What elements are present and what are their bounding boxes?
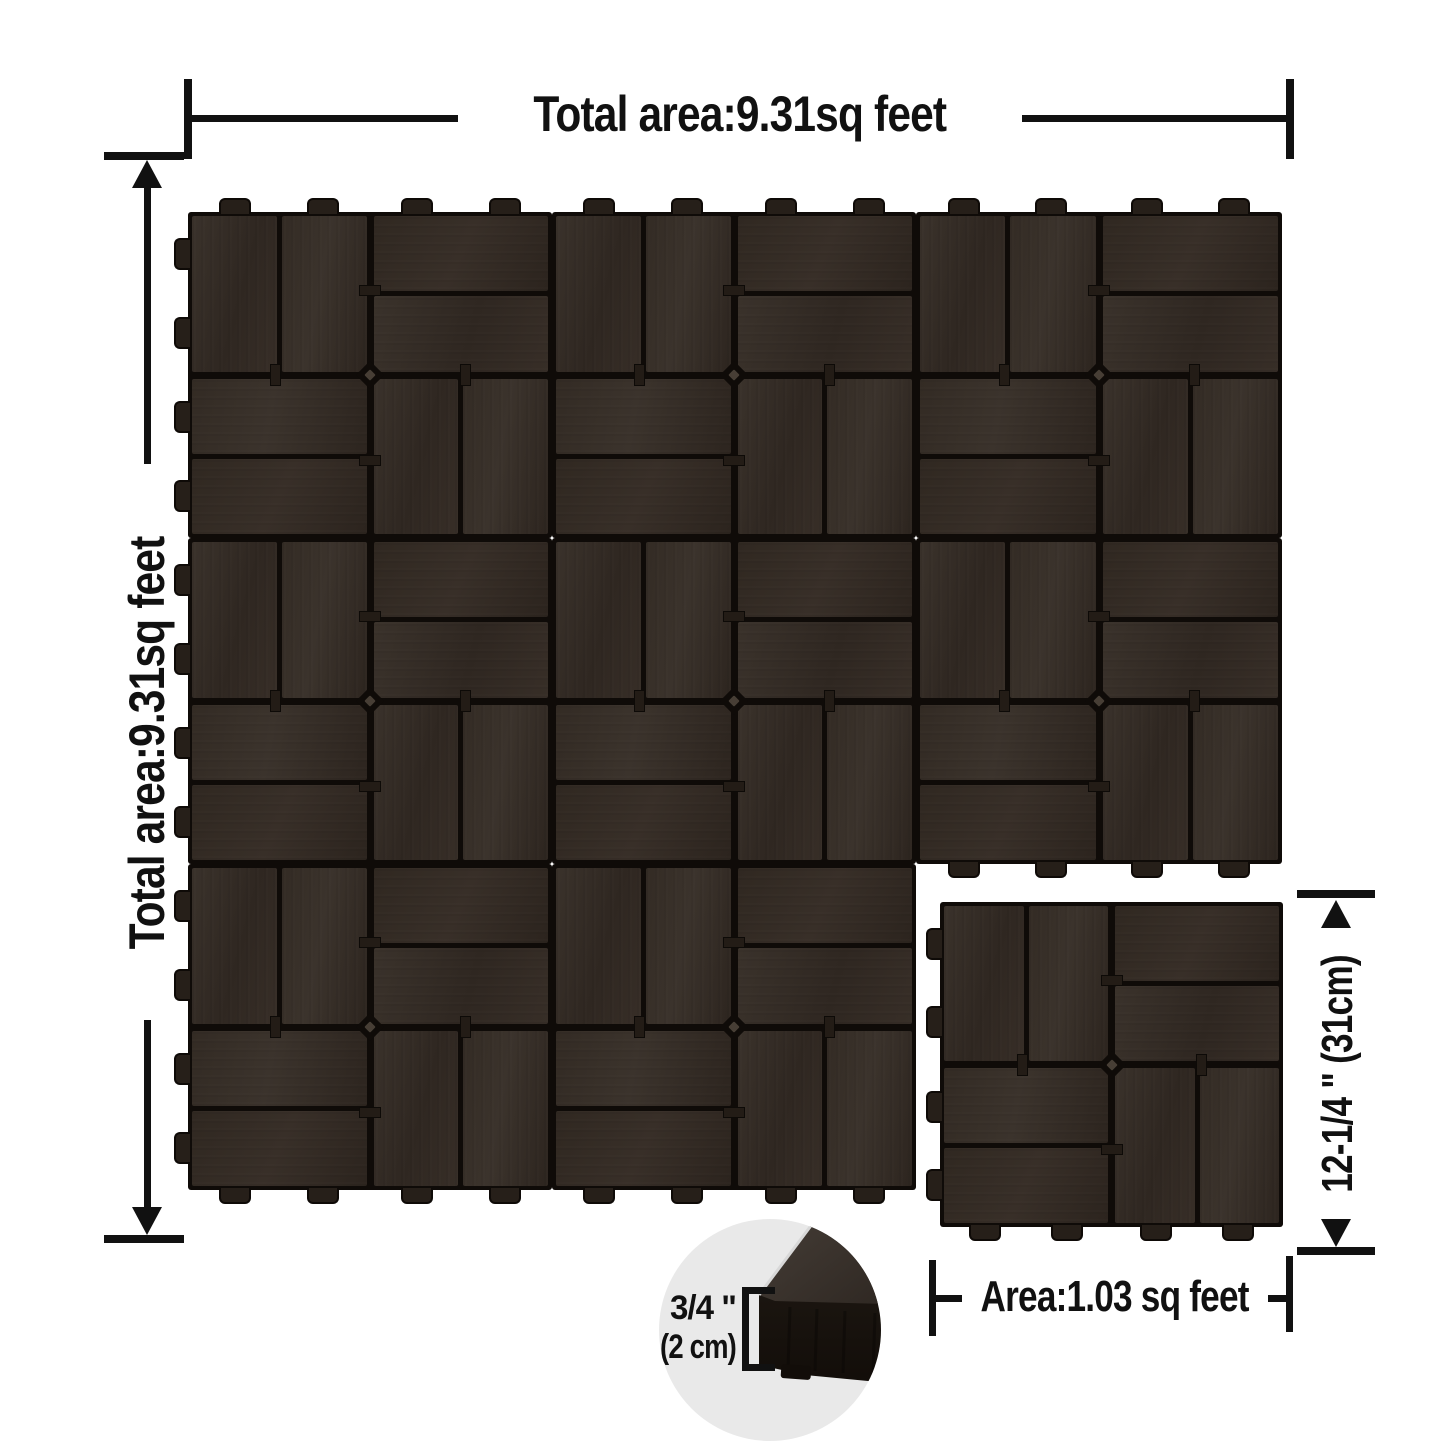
slat-connector bbox=[1196, 1054, 1207, 1076]
tile-slat bbox=[920, 785, 1096, 860]
tile-quadrant bbox=[920, 379, 1096, 535]
slat-connector bbox=[1088, 285, 1110, 296]
thickness-inset: 3/4 " (2 cm) bbox=[655, 1215, 885, 1445]
tile-slat bbox=[738, 379, 823, 535]
interlock-tab bbox=[583, 1188, 615, 1204]
tile-area-label: Area:1.03 sq feet bbox=[981, 1272, 1249, 1322]
interlock-tab bbox=[174, 806, 190, 838]
tile-slat bbox=[282, 216, 367, 372]
tile-slat bbox=[192, 216, 277, 372]
interlock-tab bbox=[926, 1091, 942, 1123]
tile-slat bbox=[556, 785, 731, 860]
tile-quadrant bbox=[374, 216, 549, 372]
tile-slat bbox=[374, 705, 459, 861]
tile-slat bbox=[1193, 705, 1278, 861]
tile-slat bbox=[556, 1111, 731, 1186]
slat-connector bbox=[359, 1107, 381, 1118]
tile-slat bbox=[192, 379, 367, 454]
tile-slat bbox=[282, 868, 367, 1024]
interlock-tab bbox=[926, 928, 942, 960]
tile-slat bbox=[1115, 986, 1279, 1061]
tile-quadrant bbox=[374, 868, 549, 1024]
interlock-tab bbox=[174, 317, 190, 349]
slat-connector bbox=[723, 611, 745, 622]
tile-quadrant bbox=[374, 705, 549, 861]
tile-quadrant bbox=[738, 705, 913, 861]
tile-quadrant bbox=[556, 216, 731, 372]
interlock-tab bbox=[948, 862, 980, 878]
tile-slat bbox=[192, 868, 277, 1024]
tile-quadrant bbox=[374, 1031, 549, 1187]
tile-slat bbox=[738, 705, 823, 861]
tile-size-bottom-tick bbox=[1297, 1247, 1375, 1255]
tile-slat bbox=[192, 542, 277, 698]
tile-quadrant bbox=[738, 542, 913, 698]
interlock-tab bbox=[174, 969, 190, 1001]
slat-connector bbox=[359, 781, 381, 792]
interlock-tab bbox=[174, 480, 190, 512]
tile-quadrant bbox=[556, 1031, 731, 1187]
deck-tile bbox=[916, 538, 1282, 864]
interlock-tab bbox=[174, 564, 190, 596]
deck-tile bbox=[552, 864, 916, 1190]
tile-slat bbox=[1103, 542, 1279, 617]
tile-slat bbox=[1115, 906, 1279, 981]
tile-slat bbox=[1103, 296, 1279, 371]
interlock-tab bbox=[401, 1188, 433, 1204]
slat-connector bbox=[723, 937, 745, 948]
tile-slat bbox=[920, 705, 1096, 780]
tile-size-top-tick bbox=[1297, 890, 1375, 898]
interlock-tab bbox=[853, 198, 885, 214]
slat-connector bbox=[460, 364, 471, 386]
interlock-tab bbox=[765, 1188, 797, 1204]
interlock-tab bbox=[489, 198, 521, 214]
interlock-tab bbox=[765, 198, 797, 214]
tile-quadrant bbox=[556, 542, 731, 698]
slat-connector bbox=[359, 285, 381, 296]
tile-slat bbox=[374, 1031, 459, 1187]
tile-slat bbox=[1103, 622, 1279, 697]
tile-slat bbox=[556, 379, 731, 454]
slat-connector bbox=[359, 611, 381, 622]
interlock-tab bbox=[926, 1169, 942, 1201]
slat-connector bbox=[270, 690, 281, 712]
tile-slat bbox=[920, 216, 1005, 372]
slat-connector bbox=[824, 690, 835, 712]
interlock-tab bbox=[174, 643, 190, 675]
tile-slat bbox=[556, 459, 731, 534]
total-area-left-label: Total area:9.31sq feet bbox=[118, 537, 176, 950]
deck-tile bbox=[188, 864, 552, 1190]
deck-tile bbox=[940, 902, 1283, 1227]
tile-slat bbox=[827, 379, 912, 535]
slat-connector bbox=[359, 455, 381, 466]
tile-quadrant bbox=[192, 379, 367, 535]
tile-quadrant bbox=[556, 705, 731, 861]
tile-quadrant bbox=[920, 216, 1096, 372]
interlock-tab bbox=[219, 198, 251, 214]
tile-slat bbox=[463, 1031, 548, 1187]
tile-slat bbox=[192, 1111, 367, 1186]
tile-slat bbox=[646, 868, 731, 1024]
tile-slat bbox=[1103, 216, 1279, 291]
total-area-top-label: Total area:9.31sq feet bbox=[534, 85, 947, 143]
slat-connector bbox=[723, 781, 745, 792]
total-area-left-dimension: Total area:9.31sq feet bbox=[119, 503, 175, 982]
interlock-tab bbox=[1222, 1225, 1254, 1241]
tile-slat bbox=[192, 1031, 367, 1106]
interlock-tab bbox=[1218, 198, 1250, 214]
tile-slat bbox=[556, 216, 641, 372]
tile-slat bbox=[374, 622, 549, 697]
interlock-tab bbox=[969, 1225, 1001, 1241]
tile-slat bbox=[827, 1031, 912, 1187]
deck-tile bbox=[916, 212, 1282, 538]
tile-quadrant bbox=[192, 705, 367, 861]
deck-tile bbox=[552, 538, 916, 864]
tile-slat bbox=[1103, 379, 1188, 535]
slat-connector bbox=[460, 1016, 471, 1038]
tile-slat bbox=[556, 868, 641, 1024]
deck-tile-dimension-diagram: Total area:9.31sq feet Total area:9.31sq… bbox=[0, 0, 1445, 1445]
deck-tile bbox=[552, 212, 916, 538]
tile-slat bbox=[738, 542, 913, 617]
deck-tile bbox=[188, 212, 552, 538]
slat-connector bbox=[1088, 781, 1110, 792]
tile-area-right-tick bbox=[1286, 1256, 1293, 1332]
thickness-inches-label: 3/4 " bbox=[670, 1289, 736, 1327]
tile-quadrant bbox=[920, 542, 1096, 698]
tile-slat bbox=[944, 1148, 1108, 1223]
interlock-tab bbox=[1131, 198, 1163, 214]
tile-slat bbox=[738, 622, 913, 697]
tile-slat bbox=[944, 906, 1024, 1061]
total-area-top-dimension: Total area:9.31sq feet bbox=[458, 86, 1022, 142]
slat-connector bbox=[634, 690, 645, 712]
slat-connector bbox=[1088, 611, 1110, 622]
tile-slat bbox=[192, 705, 367, 780]
interlock-tab bbox=[948, 198, 980, 214]
tile-quadrant bbox=[1103, 379, 1279, 535]
tile-slat bbox=[374, 379, 459, 535]
tile-slat bbox=[920, 542, 1005, 698]
slat-connector bbox=[1189, 364, 1200, 386]
tile-slat bbox=[738, 296, 913, 371]
tile-quadrant bbox=[944, 1068, 1108, 1223]
tile-quadrant bbox=[556, 379, 731, 535]
left-dim-line-top bbox=[144, 186, 151, 464]
interlock-tab bbox=[1051, 1225, 1083, 1241]
tile-slat bbox=[282, 542, 367, 698]
tile-slat bbox=[463, 379, 548, 535]
left-dim-top-tick bbox=[104, 152, 184, 160]
tile-slat bbox=[374, 296, 549, 371]
tile-slat bbox=[556, 705, 731, 780]
deck-tile bbox=[188, 538, 552, 864]
slat-connector bbox=[634, 1016, 645, 1038]
interlock-tab bbox=[174, 401, 190, 433]
interlock-tab bbox=[401, 198, 433, 214]
top-dim-right-tick bbox=[1286, 79, 1294, 159]
tile-quadrant bbox=[1103, 705, 1279, 861]
tile-slat bbox=[920, 459, 1096, 534]
tile-quadrant bbox=[738, 1031, 913, 1187]
tile-slat bbox=[738, 948, 913, 1023]
tile-slat bbox=[463, 705, 548, 861]
interlock-tab bbox=[1131, 862, 1163, 878]
interlock-tab bbox=[174, 727, 190, 759]
tile-slat bbox=[920, 379, 1096, 454]
tile-quadrant bbox=[192, 1031, 367, 1187]
tile-slat bbox=[738, 216, 913, 291]
tile-quadrant bbox=[738, 216, 913, 372]
tile-slat bbox=[192, 785, 367, 860]
slat-connector bbox=[723, 455, 745, 466]
interlock-tab bbox=[1035, 198, 1067, 214]
tile-quadrant bbox=[920, 705, 1096, 861]
tile-slat bbox=[374, 542, 549, 617]
tile-quadrant bbox=[738, 379, 913, 535]
slat-connector bbox=[1189, 690, 1200, 712]
left-dim-up-arrow-icon bbox=[132, 160, 162, 188]
tile-slat bbox=[374, 948, 549, 1023]
top-dim-left-tick bbox=[184, 79, 192, 159]
tile-quadrant bbox=[192, 542, 367, 698]
slat-connector bbox=[270, 1016, 281, 1038]
slat-connector bbox=[824, 1016, 835, 1038]
interlock-tab bbox=[174, 890, 190, 922]
tile-quadrant bbox=[738, 868, 913, 1024]
interlock-tab bbox=[926, 1006, 942, 1038]
interlock-tab bbox=[174, 1132, 190, 1164]
tile-slat bbox=[192, 459, 367, 534]
tile-quadrant bbox=[556, 868, 731, 1024]
tile-slat bbox=[738, 1031, 823, 1187]
thickness-cm-label: (2 cm) bbox=[660, 1328, 736, 1366]
interlock-tab bbox=[307, 1188, 339, 1204]
interlock-tab bbox=[671, 198, 703, 214]
tile-quadrant bbox=[192, 216, 367, 372]
tile-slat bbox=[1103, 705, 1188, 861]
tile-slat bbox=[1010, 542, 1095, 698]
slat-connector bbox=[999, 690, 1010, 712]
tile-slat bbox=[1200, 1068, 1280, 1223]
tile-slat bbox=[1115, 1068, 1195, 1223]
tile-slat bbox=[1029, 906, 1109, 1061]
tile-size-up-arrow-icon bbox=[1321, 900, 1351, 928]
tile-area-dimension: Area:1.03 sq feet bbox=[950, 1272, 1280, 1322]
tile-slat bbox=[646, 216, 731, 372]
tile-quadrant bbox=[1115, 906, 1279, 1061]
tile-size-dimension: 12-1/4 " (31cm) bbox=[1315, 942, 1361, 1206]
tile-quadrant bbox=[944, 906, 1108, 1061]
tile-slat bbox=[556, 1031, 731, 1106]
left-dim-line-bottom bbox=[144, 1020, 151, 1210]
left-dim-down-arrow-icon bbox=[132, 1207, 162, 1235]
slat-connector bbox=[723, 1107, 745, 1118]
tile-slat bbox=[1010, 216, 1095, 372]
interlock-tab bbox=[853, 1188, 885, 1204]
slat-connector bbox=[1101, 1144, 1123, 1155]
tile-slat bbox=[738, 868, 913, 943]
interlock-tab bbox=[219, 1188, 251, 1204]
interlock-tab bbox=[307, 198, 339, 214]
tile-slat bbox=[1193, 379, 1278, 535]
top-dim-line-left bbox=[192, 115, 458, 122]
slat-connector bbox=[1101, 975, 1123, 986]
tile-slat bbox=[374, 216, 549, 291]
interlock-tab bbox=[1218, 862, 1250, 878]
tile-size-label: 12-1/4 " (31cm) bbox=[1313, 955, 1363, 1193]
slat-connector bbox=[824, 364, 835, 386]
slat-connector bbox=[359, 937, 381, 948]
tile-quadrant bbox=[1103, 542, 1279, 698]
slat-connector bbox=[999, 364, 1010, 386]
tile-quadrant bbox=[1115, 1068, 1279, 1223]
interlock-tab bbox=[174, 238, 190, 270]
slat-connector bbox=[1017, 1054, 1028, 1076]
interlock-tab bbox=[583, 198, 615, 214]
tile-quadrant bbox=[1103, 216, 1279, 372]
tile-quadrant bbox=[374, 379, 549, 535]
slat-connector bbox=[1088, 455, 1110, 466]
slat-connector bbox=[723, 285, 745, 296]
tile-quadrant bbox=[374, 542, 549, 698]
tile-area-left-tick bbox=[929, 1260, 936, 1336]
tile-slat bbox=[827, 705, 912, 861]
interlock-tab bbox=[671, 1188, 703, 1204]
interlock-tab bbox=[1035, 862, 1067, 878]
top-dim-line-right bbox=[1022, 115, 1286, 122]
left-dim-bottom-tick bbox=[104, 1235, 184, 1243]
tile-slat bbox=[646, 542, 731, 698]
tile-size-down-arrow-icon bbox=[1321, 1219, 1351, 1247]
interlock-tab bbox=[174, 1053, 190, 1085]
interlock-tab bbox=[489, 1188, 521, 1204]
tile-slat bbox=[374, 868, 549, 943]
slat-connector bbox=[270, 364, 281, 386]
slat-connector bbox=[634, 364, 645, 386]
tile-slat bbox=[944, 1068, 1108, 1143]
tile-slat bbox=[556, 542, 641, 698]
interlock-tab bbox=[1140, 1225, 1172, 1241]
tile-quadrant bbox=[192, 868, 367, 1024]
slat-connector bbox=[460, 690, 471, 712]
